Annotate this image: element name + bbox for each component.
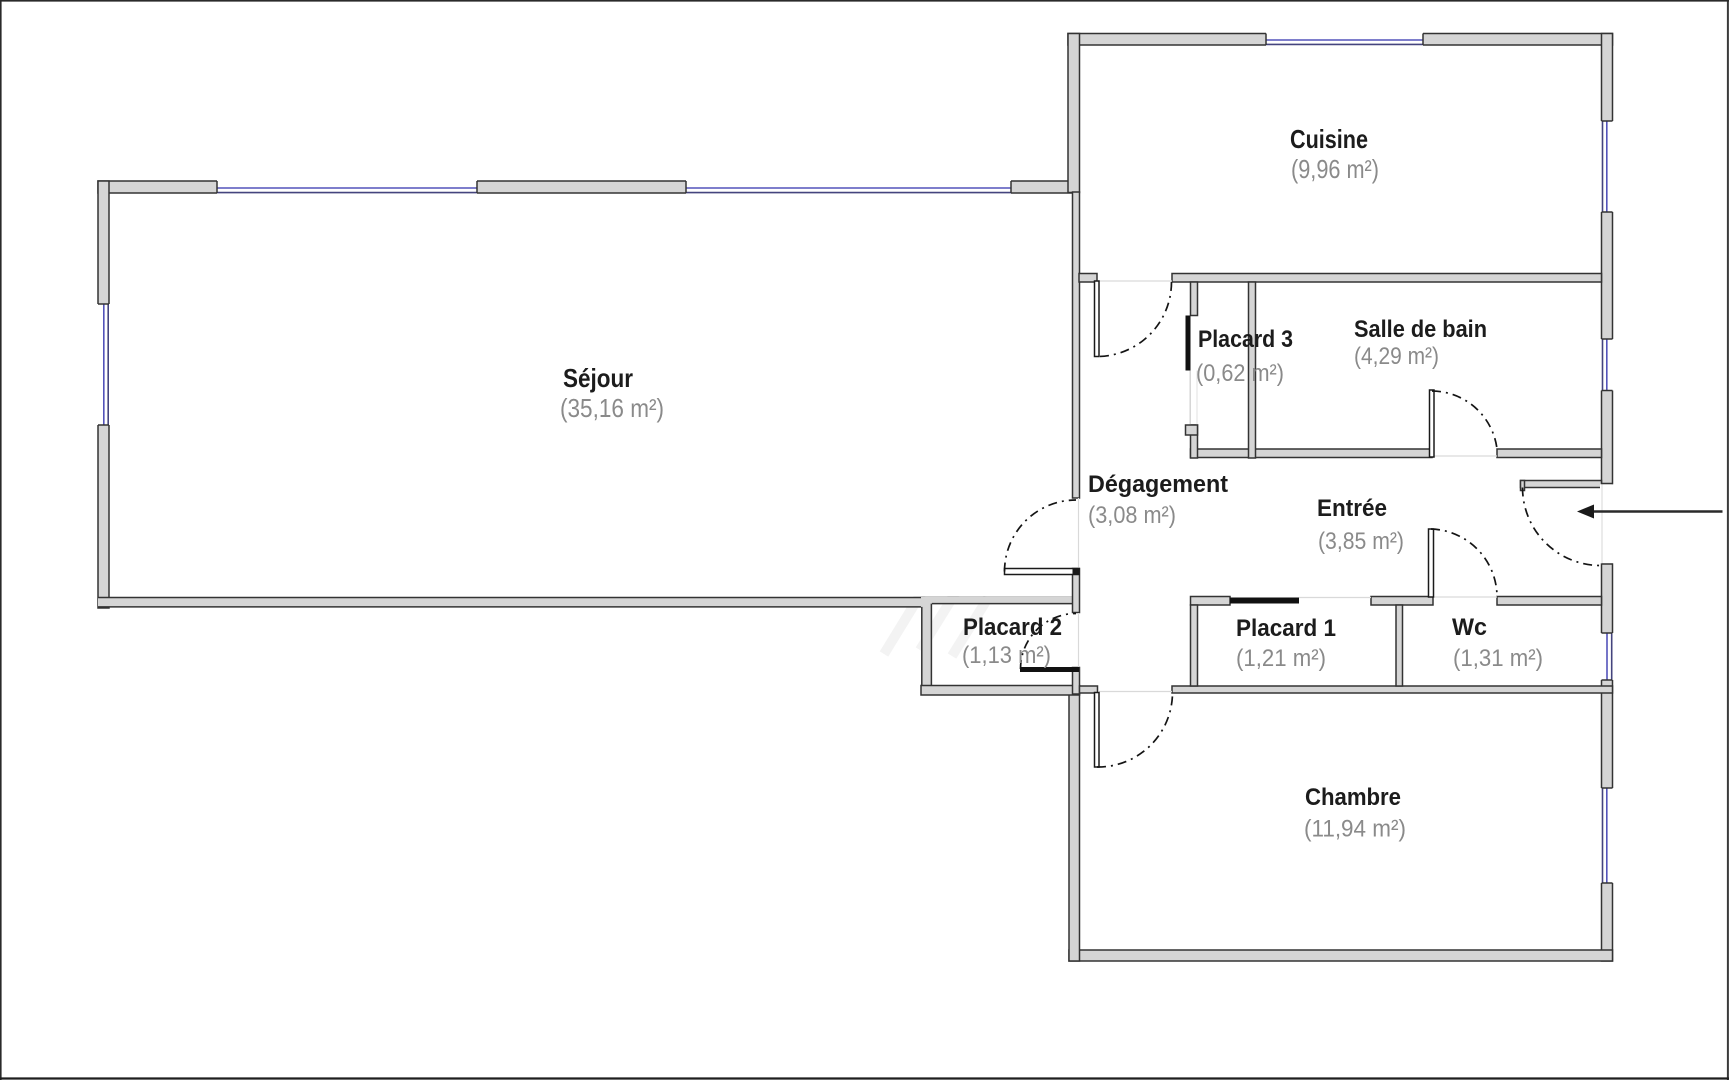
svg-text:(4,29 m²): (4,29 m²) [1354,343,1439,370]
svg-text:(1,13 m²): (1,13 m²) [962,642,1051,669]
svg-text:(9,96 m²): (9,96 m²) [1291,154,1379,184]
svg-text:Chambre: Chambre [1305,784,1401,811]
svg-text:(3,08 m²): (3,08 m²) [1088,502,1176,529]
svg-text:Wc: Wc [1452,614,1487,641]
svg-text:Placard 2: Placard 2 [963,614,1062,641]
svg-text:Placard 1: Placard 1 [1236,615,1336,642]
svg-text:(35,16 m²): (35,16 m²) [560,393,664,423]
svg-text:(0,62 m²): (0,62 m²) [1196,360,1284,387]
svg-text:Salle de bain: Salle de bain [1354,316,1487,343]
svg-text:Entrée: Entrée [1317,495,1387,522]
svg-text:Placard 3: Placard 3 [1198,326,1293,353]
svg-text:(11,94 m²): (11,94 m²) [1304,816,1406,843]
svg-text:Cuisine: Cuisine [1290,124,1368,154]
svg-text:(1,21 m²): (1,21 m²) [1236,645,1326,672]
svg-text:Dégagement: Dégagement [1088,471,1228,498]
svg-text:(3,85 m²): (3,85 m²) [1318,528,1404,555]
svg-text:(1,31 m²): (1,31 m²) [1453,645,1543,672]
svg-text:Séjour: Séjour [563,363,633,393]
